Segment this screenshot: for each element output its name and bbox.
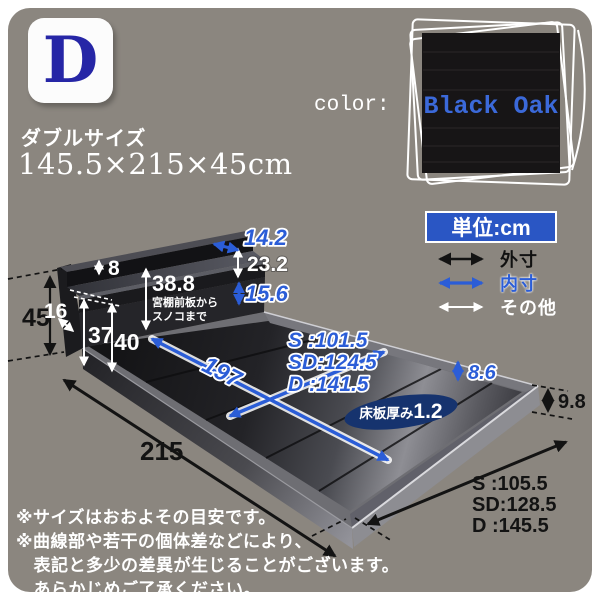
legend-row-outer: 外寸 bbox=[414, 250, 589, 267]
size-letter: D bbox=[43, 29, 99, 93]
footnotes: ※サイズはおおよその目安です。 ※曲線部や若干の個体差などにより、 表記と多少の… bbox=[16, 506, 576, 600]
label-outer-length: 215 bbox=[140, 436, 183, 466]
label-frame-height: 9.8 bbox=[558, 391, 586, 413]
inner-arrow-sample bbox=[430, 276, 492, 290]
label-388: 38.8 bbox=[152, 271, 195, 296]
label-156: 15.6 bbox=[245, 281, 289, 306]
legend-label-other: その他 bbox=[500, 294, 557, 320]
label-inner-width-d: D :141.5 bbox=[288, 373, 369, 396]
label-37: 37 bbox=[88, 322, 114, 348]
color-swatch: Black Oak bbox=[407, 19, 584, 185]
label-40: 40 bbox=[114, 329, 140, 355]
size-badge: D bbox=[28, 18, 113, 103]
label-inner-width-sd: SD:124.5 bbox=[288, 351, 377, 374]
legend-row-inner: 内寸 bbox=[414, 274, 589, 291]
legend-label-inner: 内寸 bbox=[500, 270, 538, 296]
label-outer-width-s: S :105.5 bbox=[472, 473, 548, 495]
swatch-color-name: Black Oak bbox=[423, 92, 558, 121]
guide-bottom-left bbox=[8, 352, 64, 361]
label-shelf-depth: 16 bbox=[44, 300, 67, 323]
size-dimensions: 145.5×215×45cm bbox=[18, 147, 293, 181]
other-arrow-sample bbox=[430, 300, 492, 314]
legend-label-outer: 外寸 bbox=[500, 246, 538, 272]
label-86: 8.6 bbox=[468, 362, 497, 384]
callout-label: 床板厚み bbox=[359, 405, 413, 421]
label-232: 23.2 bbox=[247, 253, 288, 276]
footnote-line: あらかじめご了承ください。 bbox=[16, 578, 576, 600]
footnote-line: ※サイズはおおよその目安です。 bbox=[16, 506, 576, 530]
unit-box: 単位:cm bbox=[425, 211, 557, 243]
color-label: color: bbox=[314, 94, 390, 117]
legend-row-other: その他 bbox=[414, 298, 589, 315]
guide-frame-bottom bbox=[532, 412, 572, 419]
legend: 単位:cm 外寸 内寸 その他 bbox=[414, 211, 589, 315]
product-dimension-card: 45 215 S :105.5 SD:128.5 D :145.5 9.8 8 … bbox=[0, 0, 600, 600]
outer-arrow-sample bbox=[430, 252, 492, 266]
footnote-line: 表記と多少の差異が生じることがございます。 bbox=[16, 554, 576, 578]
label-inner-width-s: S :101.5 bbox=[288, 329, 368, 352]
label-topboard: 8 bbox=[108, 257, 120, 280]
footnote-line: ※曲線部や若干の個体差などにより、 bbox=[16, 530, 576, 554]
label-142: 14.2 bbox=[244, 225, 288, 250]
guide-top-left bbox=[8, 269, 62, 279]
callout-value: 1.2 bbox=[413, 400, 442, 423]
label-388-note2: スノコまで bbox=[152, 310, 207, 323]
label-388-note1: 宮棚前板から bbox=[152, 295, 218, 309]
